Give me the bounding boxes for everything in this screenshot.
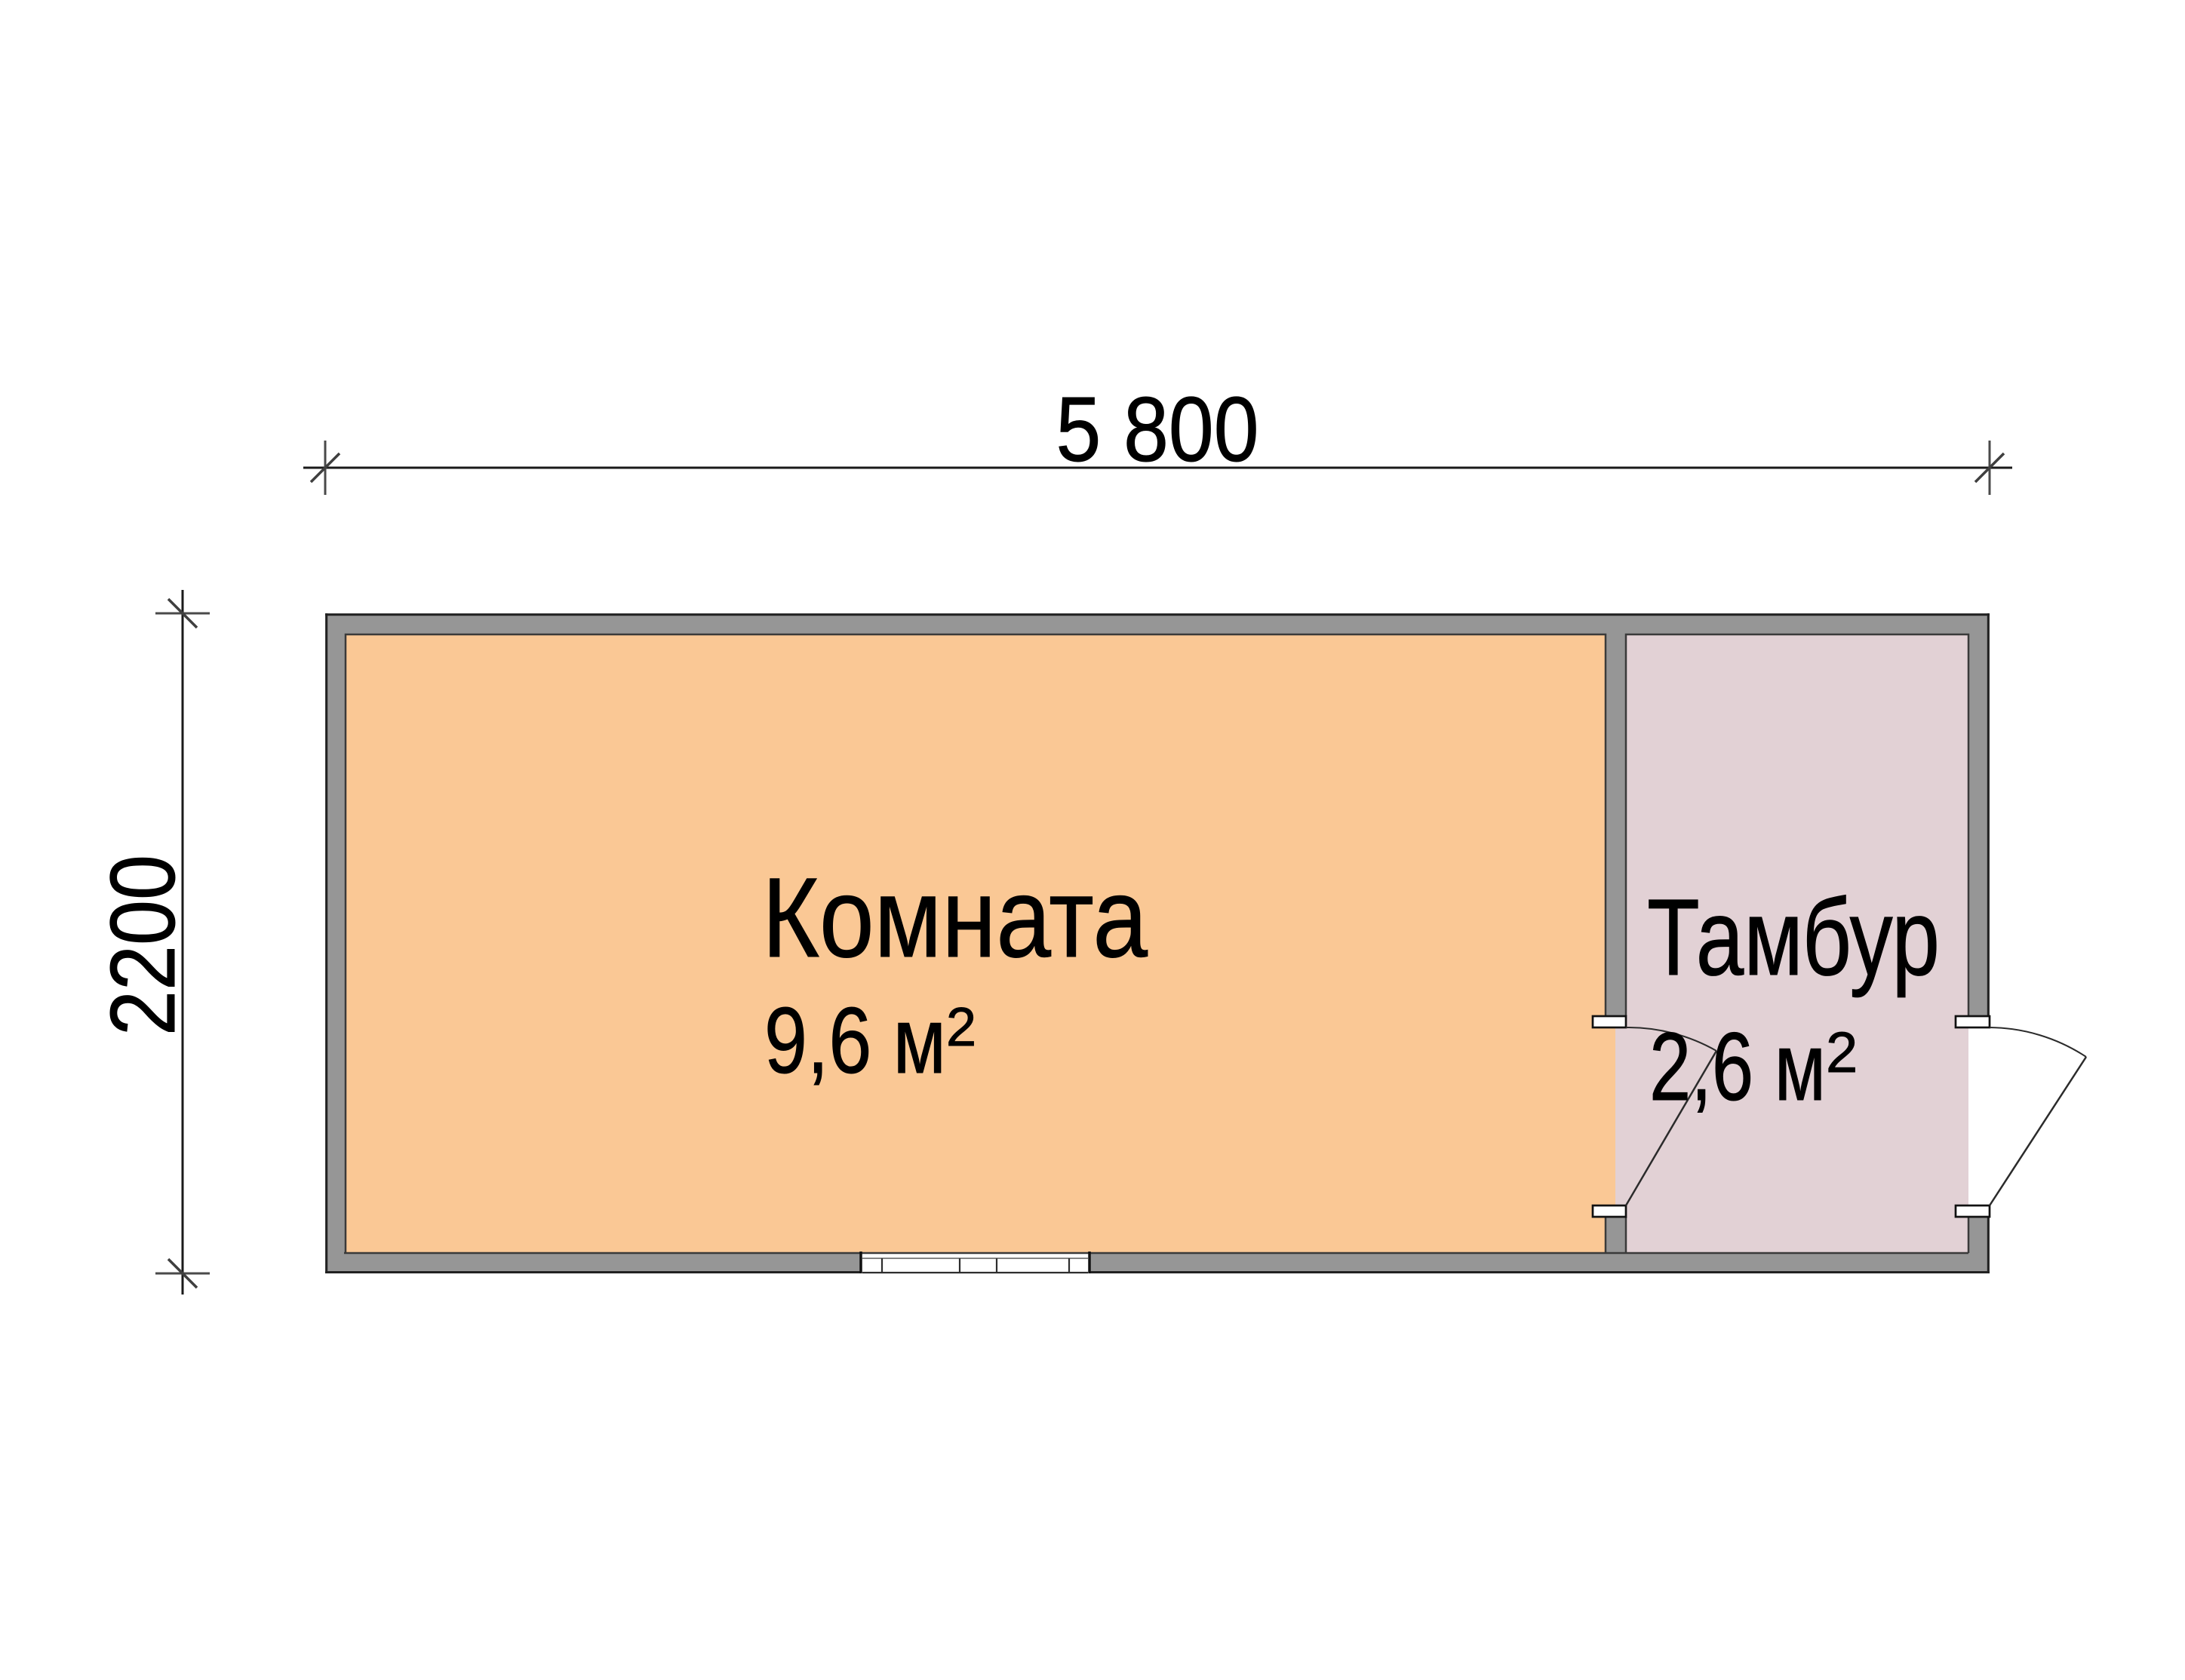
svg-text:5 800: 5 800 <box>1056 378 1259 481</box>
svg-text:Комната: Комната <box>762 854 1148 981</box>
svg-text:9,6 м2: 9,6 м2 <box>764 989 976 1093</box>
svg-text:Тамбур: Тамбур <box>1647 877 1940 998</box>
svg-text:2200: 2200 <box>91 855 194 1036</box>
